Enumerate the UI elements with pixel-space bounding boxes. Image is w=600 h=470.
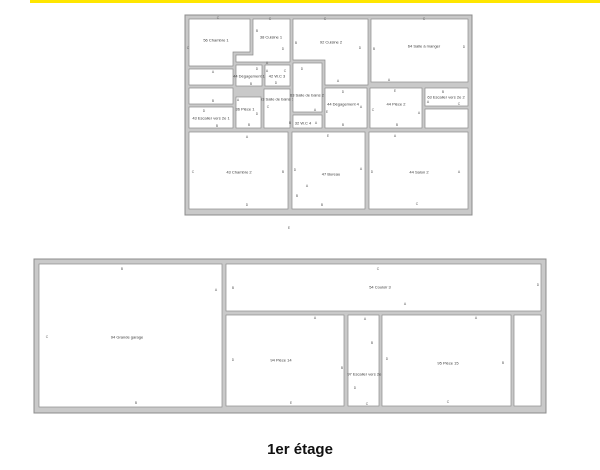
floor-caption: 1er étage bbox=[0, 441, 600, 458]
room-label-couloir-3: 54 Couloir 3 bbox=[369, 285, 391, 290]
room-label-cuisine-1: 38 Cuisine 1 bbox=[260, 35, 283, 40]
room-label-chambre-2: 43 Chambre 2 bbox=[226, 170, 252, 175]
room-salle-de-bains-2 bbox=[293, 63, 322, 112]
room-label-piece-1: 36 Pièce 1 bbox=[236, 107, 256, 112]
room-label-chambre-1: 56 Chambre 1 bbox=[203, 38, 229, 43]
room-label-degagement-1: 44 Dégagement 1 bbox=[233, 74, 266, 79]
room-label-escalier-2: 63 Escalier vers 2e 2 bbox=[427, 95, 465, 100]
room-label-salon-2: 44 Salon 2 bbox=[409, 170, 429, 175]
room-reduit bbox=[425, 109, 468, 128]
room-label-salle-a-manger: 64 Salle à manger bbox=[408, 44, 441, 49]
room-label-piece-2: 44 Pièce 2 bbox=[387, 102, 407, 107]
floor-plans-canvas: 56 Chambre 138 Cuisine 192 Cuisine 264 S… bbox=[0, 0, 600, 470]
room-label-bureau: 47 Bureau bbox=[322, 172, 340, 177]
room-bureau bbox=[292, 132, 365, 209]
room-label-escalier-1: 43 Escalier vers 2e 1 bbox=[192, 116, 230, 121]
room-label-grande-garage: 94 Grande garage bbox=[111, 335, 144, 340]
room-label-wc-3: 42 W.C 3 bbox=[269, 74, 286, 79]
room-reduit-2 bbox=[514, 315, 541, 406]
room-escalier-4 bbox=[348, 315, 379, 406]
room-label-piece-15: 95 Pièce 15 bbox=[437, 361, 459, 366]
room-label-degagement-4: 44 Dégagement 4 bbox=[327, 102, 360, 107]
room-label-salle-de-bains-2: 63 Salle de bains 2 bbox=[290, 93, 325, 98]
lower-plan: 94 Grande garage54 Couloir 394 Pièce 149… bbox=[34, 259, 546, 413]
room-label-cuisine-2: 92 Cuisine 2 bbox=[320, 40, 343, 45]
room-piece-2 bbox=[370, 88, 422, 128]
wall-letter: E bbox=[288, 226, 291, 230]
room-label-wc-4: 32 W.C 4 bbox=[295, 121, 312, 126]
room-label-piece-14: 94 Pièce 14 bbox=[270, 358, 292, 363]
room-label-escalier-4: 97 Escalier vers 2e 4 bbox=[347, 372, 385, 377]
upper-plan: 56 Chambre 138 Cuisine 192 Cuisine 264 S… bbox=[185, 15, 472, 230]
room-salle-a-manger bbox=[371, 19, 468, 82]
